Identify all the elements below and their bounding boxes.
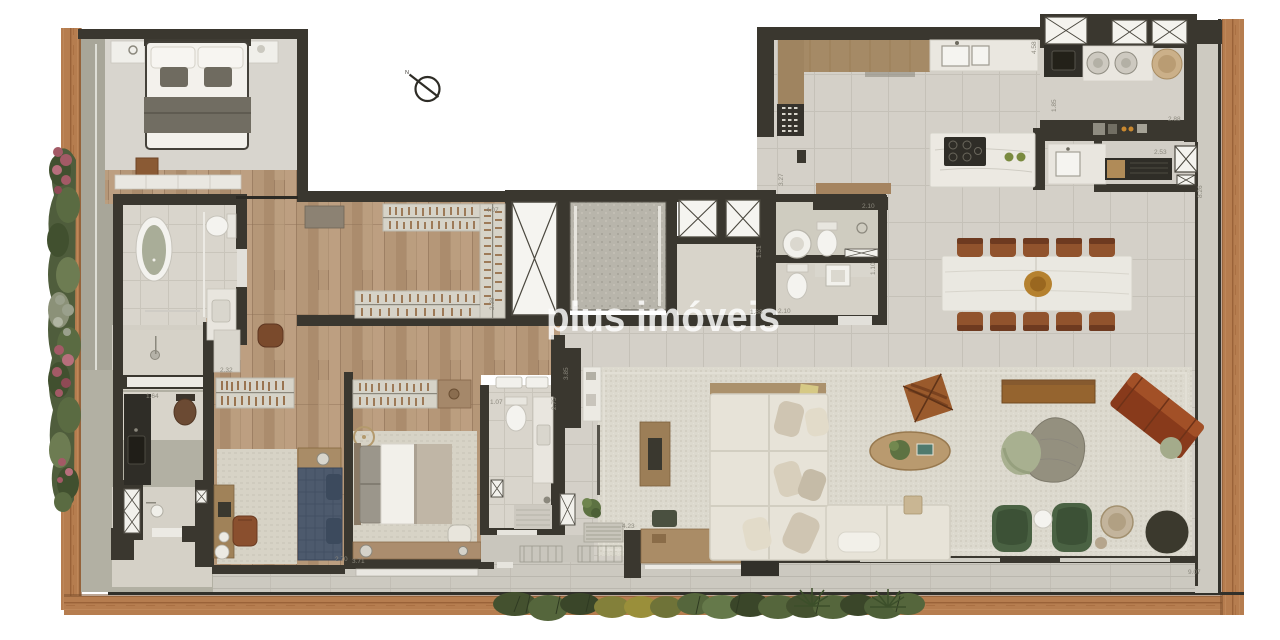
svg-text:3.27: 3.27 <box>778 173 785 186</box>
svg-text:2.38: 2.38 <box>489 297 496 310</box>
svg-text:plus imóveis: plus imóveis <box>546 292 780 340</box>
svg-text:4.07: 4.07 <box>486 207 499 214</box>
svg-text:1.10: 1.10 <box>870 262 877 275</box>
svg-text:1.64: 1.64 <box>146 393 159 400</box>
svg-text:2.53: 2.53 <box>1154 149 1167 156</box>
svg-text:2.75: 2.75 <box>551 397 558 410</box>
svg-text:8.26: 8.26 <box>1197 185 1204 198</box>
svg-text:4.23: 4.23 <box>622 523 635 530</box>
svg-text:2.10: 2.10 <box>778 308 791 315</box>
svg-text:2.10: 2.10 <box>862 203 875 210</box>
svg-text:3.85: 3.85 <box>563 367 570 380</box>
svg-text:9.07: 9.07 <box>1188 569 1201 576</box>
svg-text:1.07: 1.07 <box>490 399 503 406</box>
svg-text:2.70: 2.70 <box>335 556 348 563</box>
svg-text:N: N <box>405 70 409 76</box>
svg-text:1.88: 1.88 <box>750 309 763 316</box>
svg-text:4.58: 4.58 <box>1031 41 1038 54</box>
svg-text:1.85: 1.85 <box>1051 99 1058 112</box>
svg-text:2.32: 2.32 <box>220 367 233 374</box>
svg-text:3.71: 3.71 <box>352 558 365 565</box>
svg-text:2.88: 2.88 <box>1168 116 1181 123</box>
svg-text:1.51: 1.51 <box>756 245 763 258</box>
